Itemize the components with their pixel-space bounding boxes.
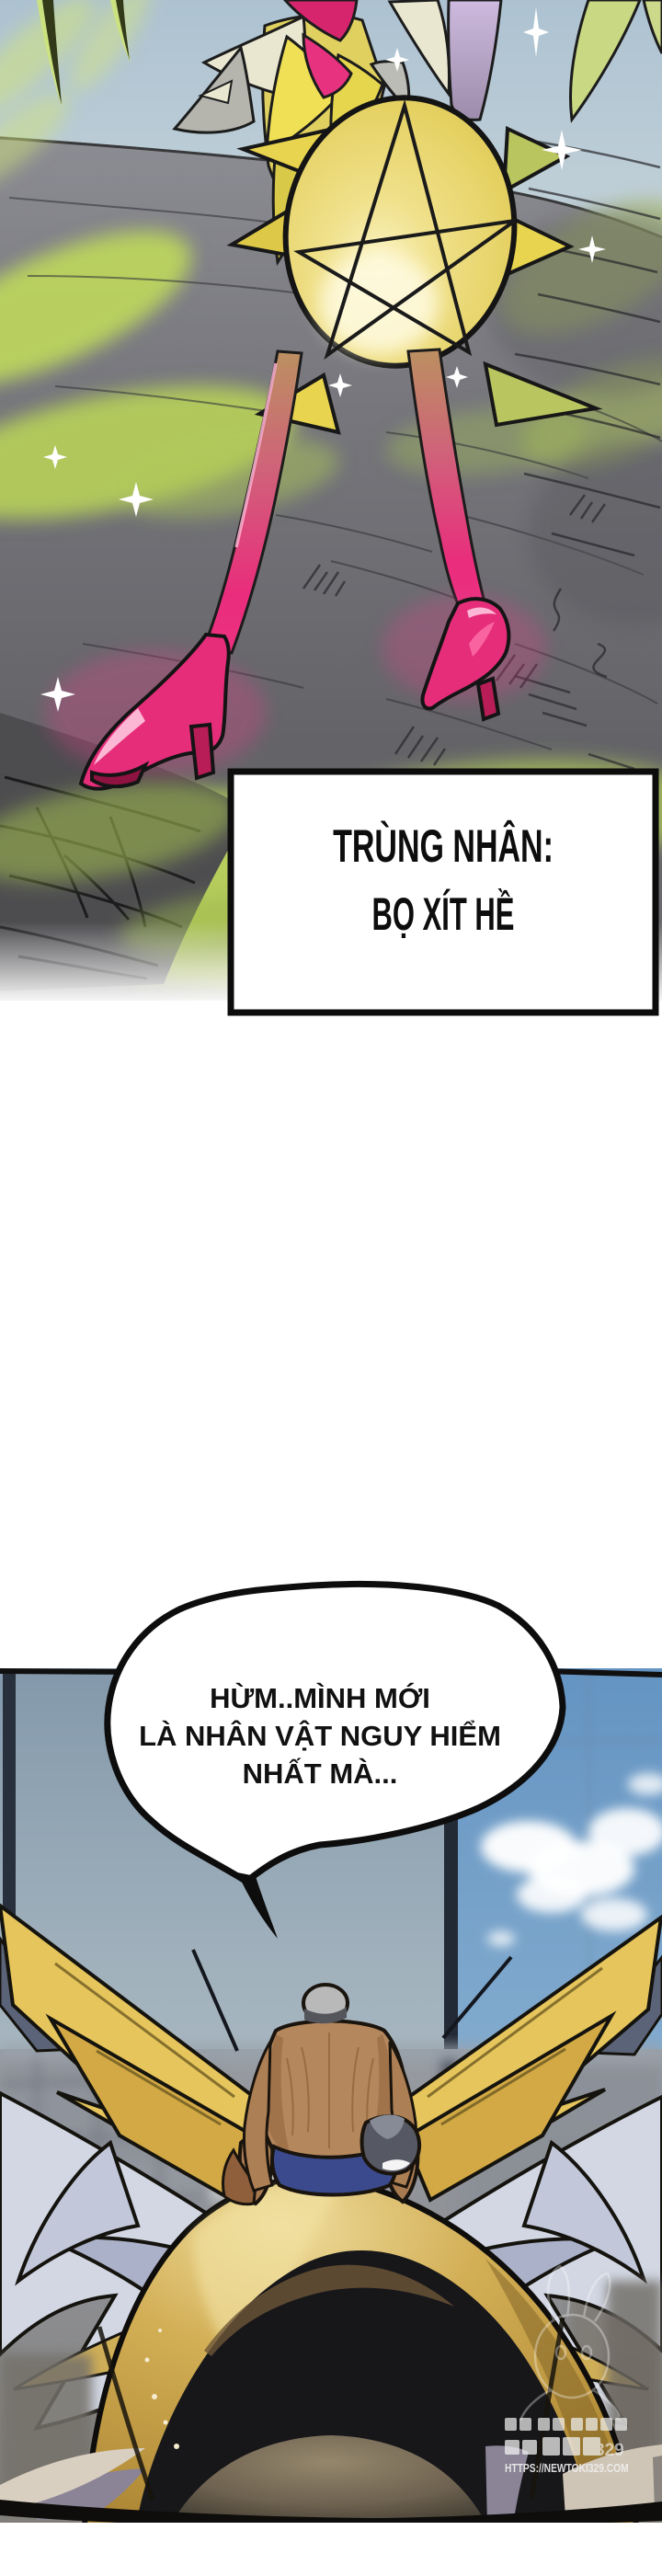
- svg-text:LÀ NHÂN VẬT NGUY HIỂM: LÀ NHÂN VẬT NGUY HIỂM: [139, 1719, 501, 1752]
- svg-text:TRÙNG NHÂN:: TRÙNG NHÂN:: [333, 819, 554, 872]
- svg-text:HỪM..MÌNH MỚI: HỪM..MÌNH MỚI: [210, 1681, 430, 1714]
- svg-text:NHẤT MÀ...: NHẤT MÀ...: [243, 1757, 398, 1790]
- svg-text:329: 329: [595, 2441, 624, 2460]
- svg-text:BỌ XÍT HỀ: BỌ XÍT HỀ: [372, 887, 515, 939]
- svg-text:HTTPS://NEWTOKI329.COM: HTTPS://NEWTOKI329.COM: [505, 2463, 629, 2475]
